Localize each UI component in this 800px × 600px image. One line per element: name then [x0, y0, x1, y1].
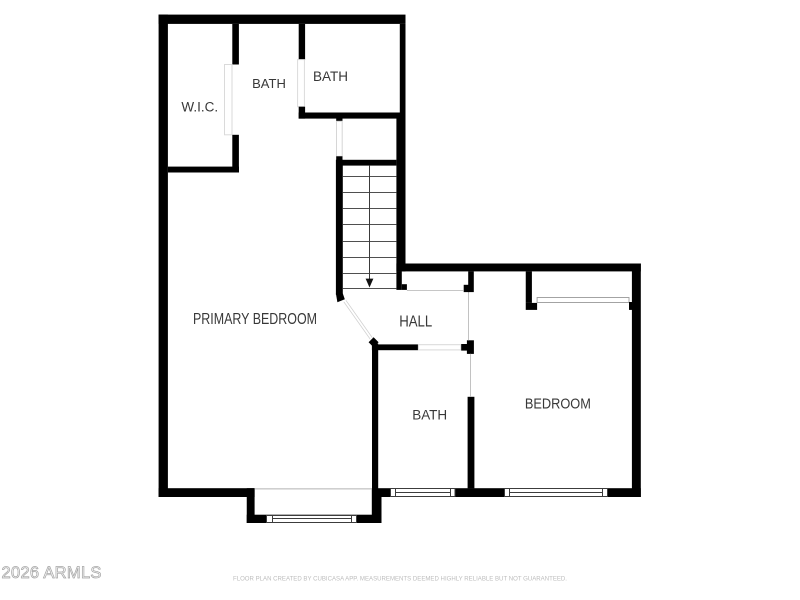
svg-text:PRIMARY BEDROOM: PRIMARY BEDROOM — [193, 311, 317, 328]
svg-text:BATH: BATH — [313, 69, 348, 84]
svg-text:BEDROOM: BEDROOM — [525, 396, 591, 413]
svg-text:2026 ARMLS: 2026 ARMLS — [2, 564, 102, 582]
svg-text:BATH: BATH — [252, 76, 286, 91]
svg-text:W.I.C.: W.I.C. — [181, 100, 218, 115]
svg-text:HALL: HALL — [399, 314, 432, 331]
svg-text:BATH: BATH — [412, 407, 447, 423]
svg-text:FLOOR PLAN CREATED BY CUBICASA: FLOOR PLAN CREATED BY CUBICASA APP. MEAS… — [233, 576, 567, 583]
